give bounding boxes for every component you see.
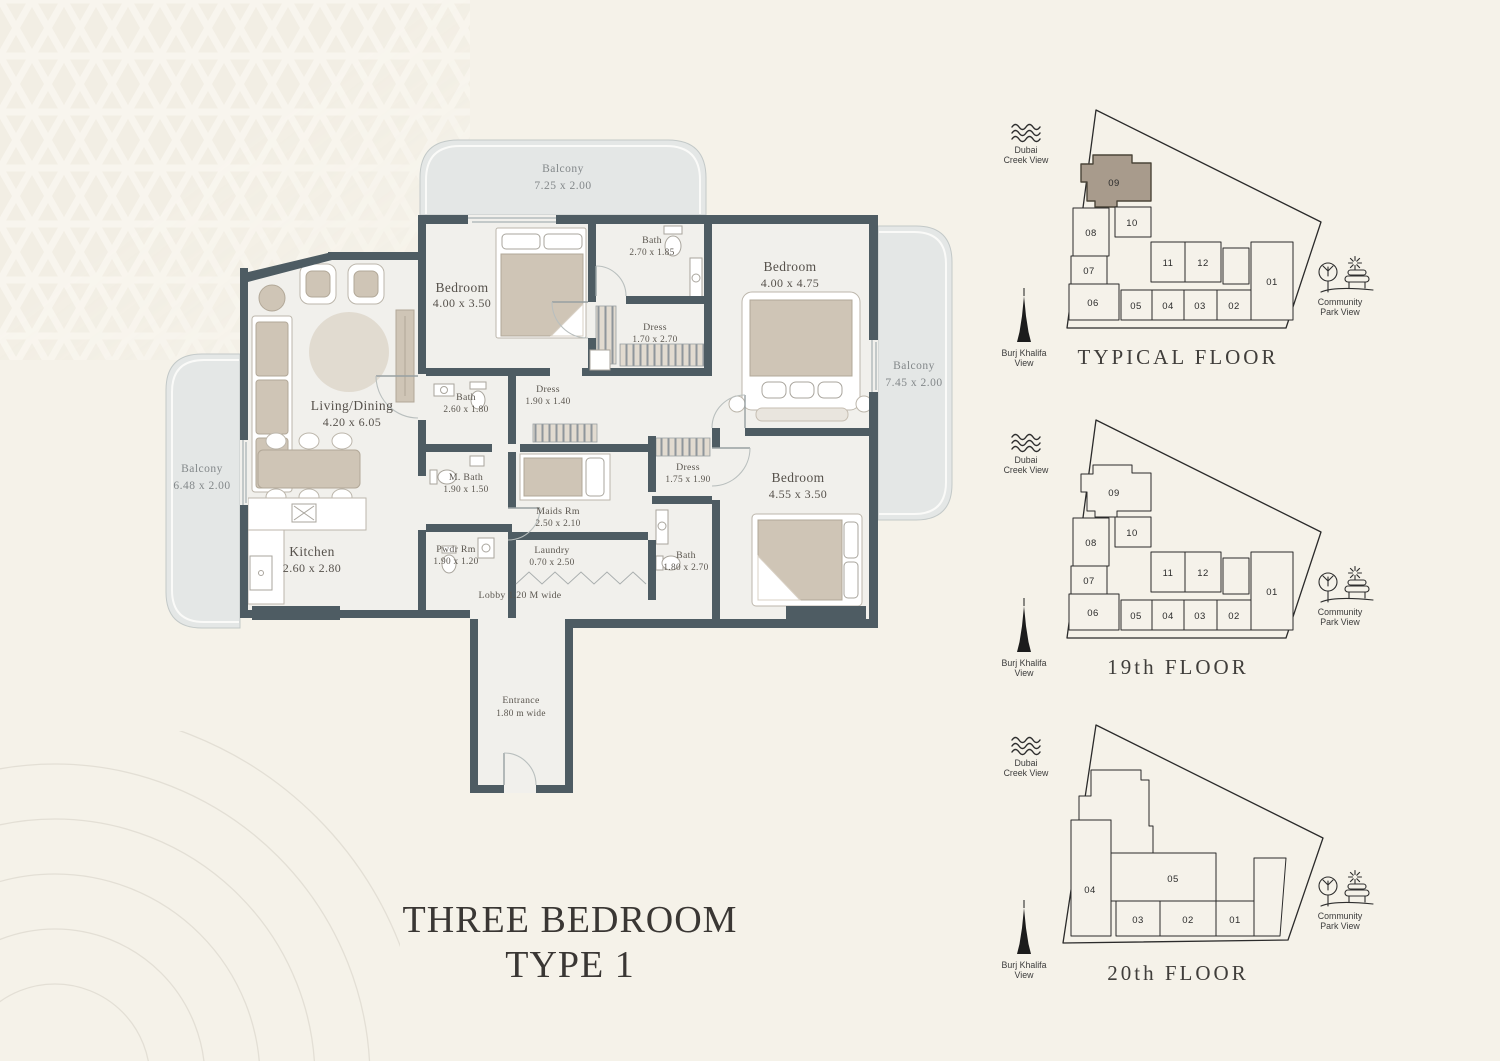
- entrance-dims: 1.80 m wide: [496, 709, 546, 719]
- svg-text:11: 11: [1163, 568, 1174, 579]
- svg-text:Park View: Park View: [1320, 921, 1360, 931]
- svg-text:Burj Khalifa: Burj Khalifa: [1002, 348, 1047, 358]
- community-park-icon: [1319, 257, 1373, 293]
- burj-view-20: Burj Khalifa View: [1002, 900, 1047, 980]
- bedroom-3-label: Bedroom: [771, 470, 824, 485]
- svg-text:Community: Community: [1318, 911, 1363, 921]
- balcony-top-label: Balcony: [542, 163, 584, 175]
- bedroom-1-dims: 4.00 x 3.50: [433, 296, 491, 310]
- bedroom-2-label: Bedroom: [763, 259, 816, 274]
- svg-text:Park View: Park View: [1320, 617, 1360, 627]
- bedroom-1-bed: [496, 228, 586, 338]
- kitchen-dims: 2.60 x 2.80: [283, 561, 341, 575]
- svg-text:10: 10: [1126, 528, 1138, 539]
- svg-text:View: View: [1015, 970, 1035, 980]
- svg-text:02: 02: [1228, 611, 1240, 622]
- typical-floor-diagram: Dubai Creek View 09 10 08 07 06 05 04 03: [983, 100, 1413, 410]
- burj-khalifa-icon: [1017, 606, 1031, 652]
- svg-text:Burj Khalifa: Burj Khalifa: [1002, 960, 1047, 970]
- bath-2-label: Bath: [456, 392, 476, 403]
- svg-text:04: 04: [1084, 885, 1096, 896]
- m-bath-label: M. Bath: [449, 472, 483, 483]
- community-park-icon: [1319, 567, 1373, 603]
- service-core: [1223, 248, 1249, 284]
- svg-text:Community: Community: [1318, 297, 1363, 307]
- service-core: [1223, 558, 1249, 594]
- bedroom-3-dims: 4.55 x 3.50: [769, 487, 827, 501]
- svg-text:Creek View: Creek View: [1004, 768, 1049, 778]
- burj-khalifa-icon: [1017, 296, 1031, 342]
- bath-3-dims: 1.80 x 2.70: [663, 563, 708, 573]
- dress-3-dims: 1.75 x 1.90: [665, 475, 710, 485]
- svg-text:Creek View: Creek View: [1004, 155, 1049, 165]
- bath-1-label: Bath: [642, 235, 662, 246]
- svg-text:01: 01: [1266, 277, 1278, 288]
- floor-19-diagram: Dubai Creek View 09 10 08 07 06 05 04 03: [983, 410, 1413, 720]
- bedroom-3-bed: [752, 514, 862, 606]
- balcony-right-dims: 7.45 x 2.00: [885, 377, 942, 389]
- svg-text:View: View: [1015, 358, 1035, 368]
- balcony-right: Balcony 7.45 x 2.00: [878, 226, 952, 520]
- creek-waves-icon: [1012, 125, 1040, 142]
- svg-text:01: 01: [1229, 915, 1241, 926]
- svg-text:Park View: Park View: [1320, 307, 1360, 317]
- burj-view-19: Burj Khalifa View: [1002, 598, 1047, 678]
- units-typical: 09 10 08 07 06 05 04 03 02 11 12 01: [1069, 155, 1293, 320]
- bedroom-2-bed: [729, 292, 872, 421]
- bath-1-dims: 2.70 x 1.85: [629, 248, 674, 258]
- unit-04: [1071, 820, 1111, 936]
- svg-text:09: 09: [1108, 178, 1120, 189]
- dress-2-label: Dress: [536, 384, 560, 395]
- svg-text:01: 01: [1266, 587, 1278, 598]
- living-dining-dims: 4.20 x 6.05: [323, 415, 381, 429]
- svg-text:06: 06: [1087, 608, 1099, 619]
- plan-title: THREE BEDROOM TYPE 1: [370, 898, 770, 988]
- svg-text:08: 08: [1085, 538, 1097, 549]
- balcony-top: Balcony 7.25 x 2.00: [420, 140, 706, 215]
- living-dining-label: Living/Dining: [311, 398, 393, 413]
- bedroom-2-dims: 4.00 x 4.75: [761, 276, 819, 290]
- svg-text:11: 11: [1163, 258, 1174, 269]
- community-park-icon: [1319, 871, 1373, 907]
- park-view-19: Community Park View: [1318, 567, 1373, 628]
- units-19: 09 10 08 07 06 05 04 03 02 11 12 01: [1069, 465, 1293, 630]
- svg-text:10: 10: [1126, 218, 1138, 229]
- bedroom-1-label: Bedroom: [435, 280, 488, 295]
- creek-waves-icon: [1012, 435, 1040, 452]
- floor-19-title: 19th FLOOR: [1107, 655, 1248, 679]
- svg-text:Burj Khalifa: Burj Khalifa: [1002, 658, 1047, 668]
- typical-floor-title: TYPICAL FLOOR: [1078, 345, 1279, 369]
- svg-text:Community: Community: [1318, 607, 1363, 617]
- svg-text:09: 09: [1108, 488, 1120, 499]
- m-bath-dims: 1.90 x 1.50: [443, 485, 488, 495]
- entrance-label: Entrance: [502, 695, 540, 706]
- creek-view-20: Dubai Creek View: [1004, 738, 1049, 779]
- pwdr-rm-label: Pwdr Rm: [436, 544, 475, 555]
- burj-view-typical: Burj Khalifa View: [1002, 288, 1047, 368]
- unit-05: [1111, 853, 1216, 901]
- floor-plan-page: Balcony 7.25 x 2.00 Balcony 7.45 x 2.00 …: [0, 0, 1500, 1061]
- park-view-typical: Community Park View: [1318, 257, 1373, 318]
- floor-20-diagram: Dubai Creek View 04 05 03 02 01 Burj Kha…: [983, 708, 1413, 1018]
- burj-khalifa-icon: [1017, 908, 1031, 954]
- pwdr-rm-dims: 1.90 x 1.20: [433, 557, 478, 567]
- floor-20-title: 20th FLOOR: [1107, 961, 1248, 985]
- svg-text:Dubai: Dubai: [1015, 455, 1038, 465]
- balcony-left-dims: 6.48 x 2.00: [173, 480, 230, 492]
- svg-text:12: 12: [1197, 568, 1209, 579]
- svg-text:03: 03: [1132, 915, 1144, 926]
- svg-text:07: 07: [1083, 266, 1095, 277]
- maids-rm-dims: 2.50 x 2.10: [535, 519, 580, 529]
- creek-view-19: Dubai Creek View: [1004, 435, 1049, 476]
- svg-text:04: 04: [1162, 301, 1174, 312]
- laundry-label: Laundry: [534, 545, 569, 556]
- balcony-left: Balcony 6.48 x 2.00: [166, 354, 240, 628]
- lobby-label: Lobby 1.20 M wide: [479, 590, 562, 601]
- plan-title-line-1: THREE BEDROOM: [370, 898, 770, 943]
- svg-text:05: 05: [1130, 611, 1142, 622]
- svg-text:12: 12: [1197, 258, 1209, 269]
- svg-text:05: 05: [1167, 874, 1179, 885]
- creek-view-typical: Dubai Creek View: [1004, 125, 1049, 166]
- svg-text:Creek View: Creek View: [1004, 465, 1049, 475]
- svg-text:04: 04: [1162, 611, 1174, 622]
- bath-3-label: Bath: [676, 550, 696, 561]
- units-20: 04 05 03 02 01: [1071, 770, 1286, 936]
- balcony-right-label: Balcony: [893, 360, 935, 372]
- svg-text:05: 05: [1130, 301, 1142, 312]
- plan-title-line-2: TYPE 1: [370, 943, 770, 988]
- maids-rm-label: Maids Rm: [536, 506, 580, 517]
- svg-text:03: 03: [1194, 611, 1206, 622]
- svg-text:02: 02: [1182, 915, 1194, 926]
- balcony-top-dims: 7.25 x 2.00: [534, 180, 591, 192]
- dress-1-dims: 1.70 x 2.70: [632, 335, 677, 345]
- balcony-left-label: Balcony: [181, 463, 223, 475]
- dress-1-label: Dress: [643, 322, 667, 333]
- svg-text:03: 03: [1194, 301, 1206, 312]
- svg-text:08: 08: [1085, 228, 1097, 239]
- svg-text:02: 02: [1228, 301, 1240, 312]
- laundry-dims: 0.70 x 2.50: [529, 558, 574, 568]
- maids-room-bed: [520, 454, 610, 500]
- bath-2-dims: 2.60 x 1.80: [443, 405, 488, 415]
- kitchen-label: Kitchen: [289, 544, 335, 559]
- right-region: [1254, 858, 1286, 936]
- dress-3-label: Dress: [676, 462, 700, 473]
- main-floor-plan: Balcony 7.25 x 2.00 Balcony 7.45 x 2.00 …: [150, 128, 962, 808]
- park-view-20: Community Park View: [1318, 871, 1373, 932]
- svg-text:Dubai: Dubai: [1015, 145, 1038, 155]
- dress-2-dims: 1.90 x 1.40: [525, 397, 570, 407]
- creek-waves-icon: [1012, 738, 1040, 755]
- svg-text:06: 06: [1087, 298, 1099, 309]
- svg-text:Dubai: Dubai: [1015, 758, 1038, 768]
- svg-text:07: 07: [1083, 576, 1095, 587]
- svg-text:View: View: [1015, 668, 1035, 678]
